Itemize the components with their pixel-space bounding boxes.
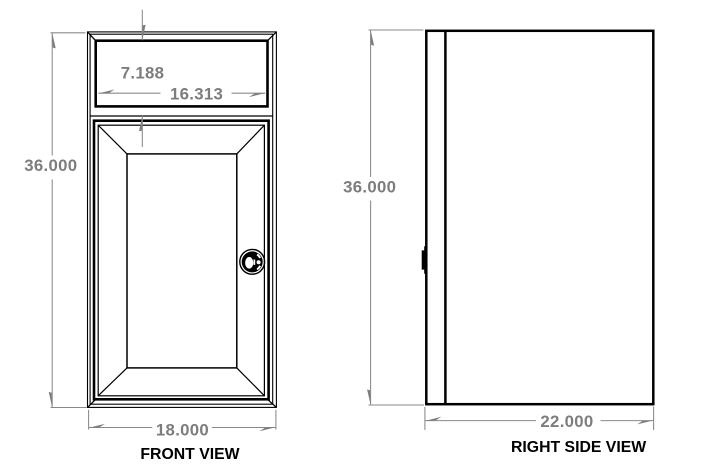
svg-text:22.000: 22.000 — [540, 412, 593, 431]
svg-text:18.000: 18.000 — [156, 420, 209, 439]
svg-text:7.188: 7.188 — [121, 64, 165, 83]
svg-text:36.000: 36.000 — [24, 156, 77, 175]
svg-text:16.313: 16.313 — [170, 84, 223, 103]
svg-text:FRONT VIEW: FRONT VIEW — [140, 446, 239, 463]
svg-text:36.000: 36.000 — [343, 178, 396, 197]
svg-text:RIGHT SIDE VIEW: RIGHT SIDE VIEW — [511, 439, 646, 456]
